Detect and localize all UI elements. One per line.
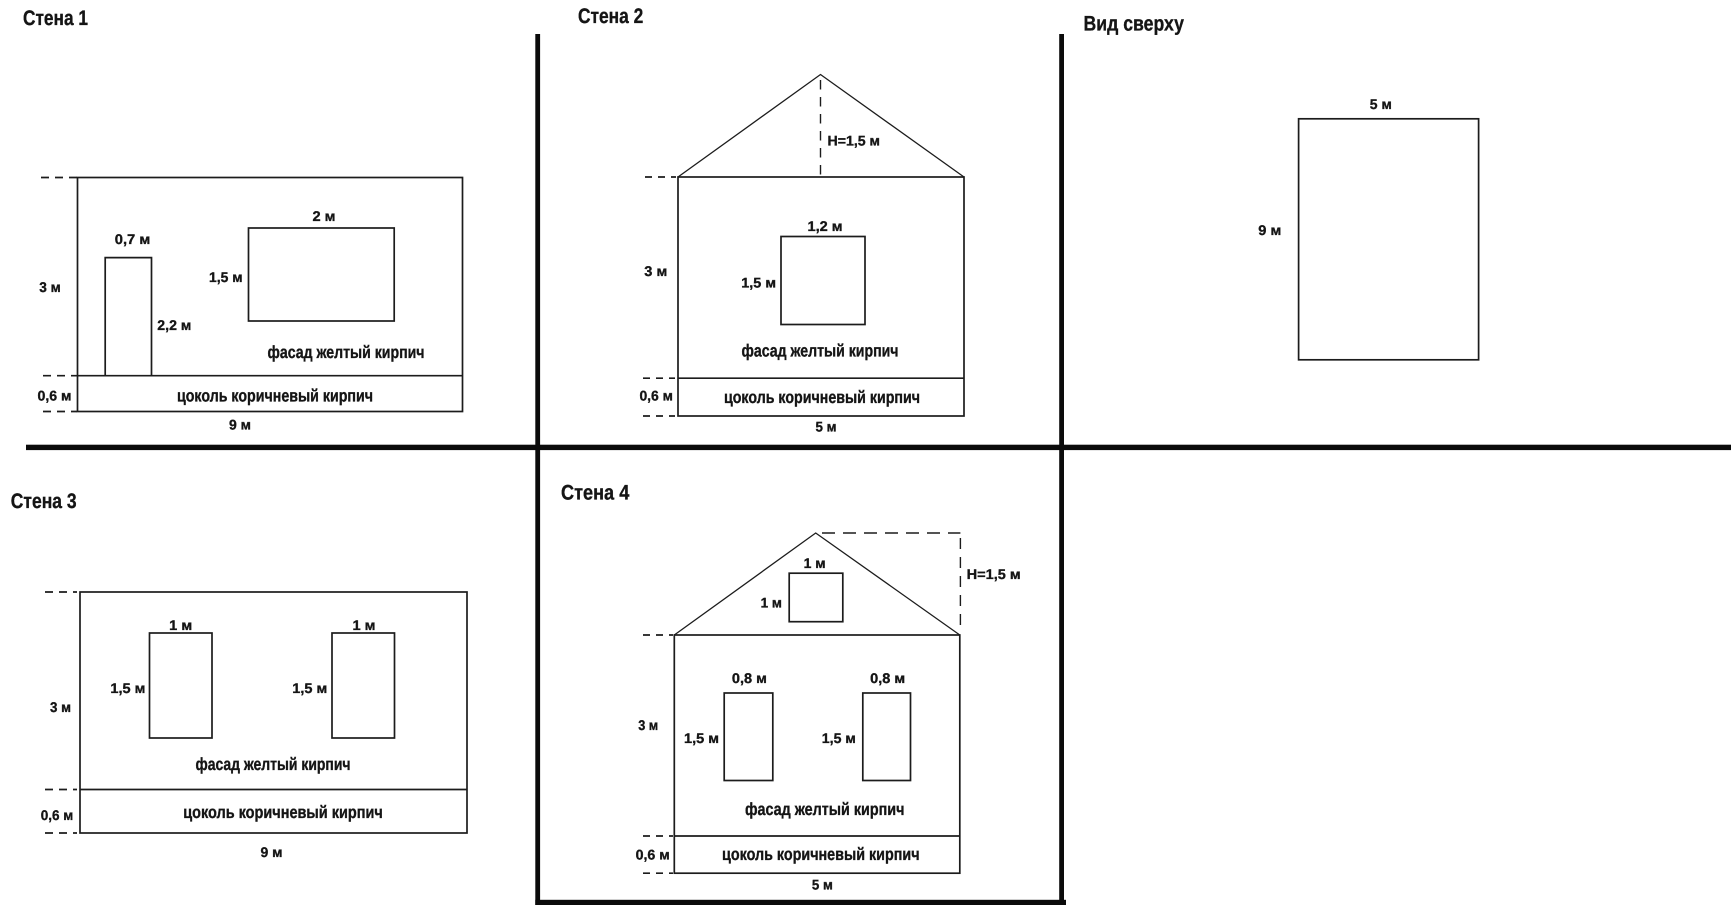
svg-text:1 м: 1 м (169, 617, 192, 633)
svg-text:3 м: 3 м (50, 699, 71, 715)
svg-text:Стена 2: Стена 2 (578, 5, 643, 28)
svg-text:0,8 м: 0,8 м (870, 670, 905, 686)
svg-text:0,6 м: 0,6 м (639, 388, 673, 404)
svg-text:9 м: 9 м (1258, 222, 1281, 238)
svg-text:3 м: 3 м (39, 279, 61, 295)
svg-text:5 м: 5 м (812, 877, 833, 893)
svg-text:цоколь коричневый кирпич: цоколь коричневый кирпич (722, 844, 920, 864)
svg-text:фасад желтый кирпич: фасад желтый кирпич (745, 799, 905, 819)
svg-text:0,7 м: 0,7 м (115, 231, 151, 247)
svg-text:0,8 м: 0,8 м (732, 670, 767, 686)
svg-text:1,5 м: 1,5 м (209, 269, 243, 285)
svg-text:5 м: 5 м (1370, 96, 1392, 112)
svg-text:1,5 м: 1,5 м (822, 730, 856, 746)
svg-text:Н=1,5 м: Н=1,5 м (828, 133, 881, 149)
svg-text:Стена 3: Стена 3 (11, 490, 77, 513)
svg-text:цоколь коричневый кирпич: цоколь коричневый кирпич (177, 386, 373, 406)
svg-text:1,5 м: 1,5 м (110, 680, 145, 696)
svg-text:9 м: 9 м (229, 417, 251, 433)
svg-text:0,6 м: 0,6 м (41, 807, 74, 823)
svg-text:3 м: 3 м (644, 263, 667, 279)
svg-text:0,6 м: 0,6 м (38, 388, 72, 404)
svg-text:цоколь коричневый кирпич: цоколь коричневый кирпич (183, 802, 383, 822)
svg-text:Вид сверху: Вид сверху (1084, 13, 1185, 36)
svg-text:цоколь коричневый кирпич: цоколь коричневый кирпич (724, 387, 920, 407)
svg-text:Стена 4: Стена 4 (561, 482, 630, 505)
svg-text:фасад желтый кирпич: фасад желтый кирпич (742, 341, 899, 361)
svg-text:1 м: 1 м (353, 617, 376, 633)
svg-text:Н=1,5 м: Н=1,5 м (967, 566, 1021, 582)
svg-text:5 м: 5 м (816, 419, 837, 435)
svg-text:9 м: 9 м (261, 844, 283, 860)
svg-text:1 м: 1 м (804, 555, 826, 571)
svg-text:фасад желтый кирпич: фасад желтый кирпич (196, 754, 351, 774)
svg-text:Стена 1: Стена 1 (23, 7, 88, 30)
svg-text:3 м: 3 м (638, 717, 658, 733)
svg-text:2 м: 2 м (313, 208, 336, 224)
svg-text:1,5 м: 1,5 м (292, 680, 327, 696)
svg-text:1,2 м: 1,2 м (808, 218, 843, 234)
svg-text:фасад желтый кирпич: фасад желтый кирпич (268, 342, 425, 362)
svg-text:2,2 м: 2,2 м (157, 317, 191, 333)
svg-text:1,5 м: 1,5 м (684, 730, 719, 746)
svg-text:0,6 м: 0,6 м (636, 847, 670, 863)
svg-text:1,5 м: 1,5 м (741, 275, 776, 291)
svg-text:1 м: 1 м (761, 595, 782, 611)
